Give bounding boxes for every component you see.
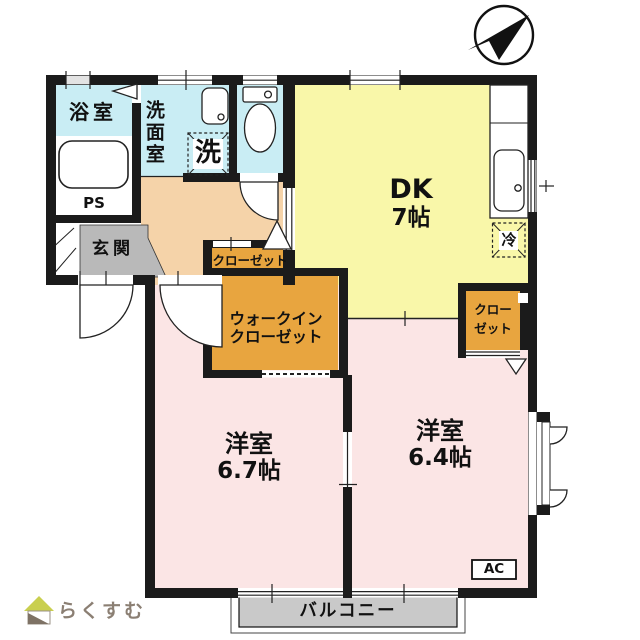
toilet-bowl [245,104,276,152]
entrance-label: 玄関 [71,240,155,260]
ac-label: AC [472,562,516,578]
bedroom2-window-frame [542,422,550,505]
bedroom2-label: 洋室 6.4帖 [370,418,510,474]
washing-machine-label: 洗 [188,139,228,169]
pipe-space-label: PS [54,195,134,212]
walkin-closet-label: ウォークイン クローゼット [206,311,346,347]
bedroom1-size: 6.7帖 [179,457,319,487]
bedroom2-size: 6.4帖 [370,444,510,474]
hall-closet-label: クローゼット [209,254,291,268]
dk-size: 7帖 [341,205,481,231]
floorplan-canvas: 浴室 洗面室 洗 PS 玄関 DK 7帖 クローゼット ウォークイン クローゼッ… [0,0,640,640]
washroom-label: 洗面室 [142,90,164,176]
watermark-text: らくすむ [58,601,146,623]
bathroom-window [66,76,90,85]
faucet [515,185,521,191]
dk-label: DK 7帖 [341,174,481,231]
right-closet-door [466,350,520,358]
bedroom1-label: 洋室 6.7帖 [179,431,319,487]
bedroom1-balcony-window [238,589,343,598]
bedroom1-doorway [158,275,222,285]
bathroom-label: 浴室 [51,101,135,124]
right-closet-label: クロー ゼット [464,300,522,339]
toilet-doorway [240,173,278,182]
balcony-label: バルコニー [266,601,430,621]
bedroom2-balcony-window [352,589,458,598]
hall-closet-door [213,241,251,247]
bedroom2-window-gap [529,412,537,515]
bedroom2-name: 洋室 [370,418,510,444]
bathtub [59,141,128,188]
dk-name: DK [341,174,481,205]
refrigerator-label: 冷 [494,232,524,249]
bedroom1-name: 洋室 [179,431,319,457]
kitchen-sink [494,150,524,211]
